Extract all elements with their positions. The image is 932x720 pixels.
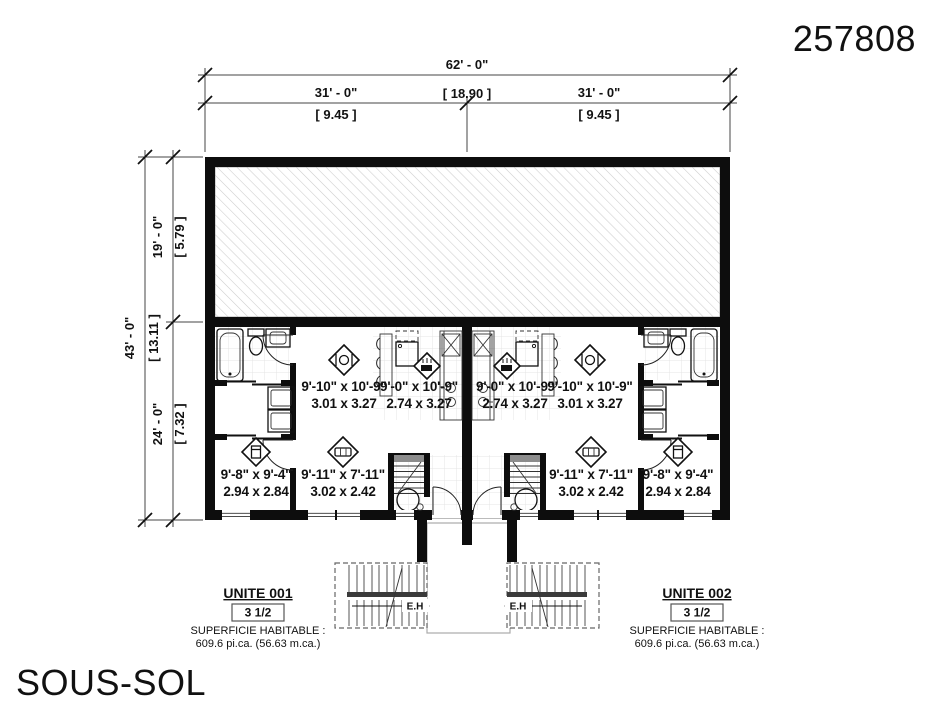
exterior-stair	[335, 563, 430, 628]
dim-right-width-m: [ 9.45 ]	[578, 107, 619, 122]
bedroom-dims-left: 9'-8" x 9'-4"	[221, 467, 292, 482]
living-dims-right: 9'-11" x 7'-11"	[549, 467, 633, 482]
unit-002-area-value: 609.6 pi.ca. (56.63 m.ca.)	[635, 638, 760, 650]
unexcavated-area	[215, 167, 720, 317]
dining-dims-m-left: 3.01 x 3.27	[311, 396, 376, 411]
dim-overall-width-m: [ 18.90 ]	[443, 86, 491, 101]
bedroom-dims-m-right: 2.94 x 2.84	[645, 484, 711, 499]
floor-plan-sheet: 62' - 0" [ 18.90 ] 31' - 0" [ 9.45 ] 31'…	[0, 0, 932, 720]
svg-text:E.H: E.H	[407, 602, 424, 613]
dim-right-width-ft: 31' - 0"	[578, 85, 621, 100]
dim-left-width-m: [ 9.45 ]	[315, 107, 356, 122]
drawing-number: 257808	[793, 18, 916, 59]
unit-002-name: UNITE 002	[662, 585, 731, 601]
svg-text:E.H: E.H	[510, 602, 527, 613]
dining-dims-right: 9'-10" x 10'-9"	[547, 379, 632, 394]
dim-top-depth-ft: 19' - 0"	[150, 216, 165, 259]
unit-002-type: 3 1/2	[684, 606, 711, 620]
kitchen-dims-left: 9'-0" x 10'-9"	[380, 379, 458, 394]
dining-dims-left: 9'-10" x 10'-9"	[301, 379, 386, 394]
unit-001-area-value: 609.6 pi.ca. (56.63 m.ca.)	[196, 638, 321, 650]
stair-label-right: E.H	[505, 599, 532, 613]
dining-icon-left	[329, 345, 359, 375]
party-wall	[462, 317, 472, 520]
dim-overall-depth-m: [ 13.11 ]	[146, 314, 161, 362]
bedroom-dims-m-left: 2.94 x 2.84	[223, 484, 289, 499]
stair-label-left: E.H	[402, 599, 429, 613]
floor-title: SOUS-SOL	[16, 662, 206, 703]
dim-overall-depth-ft: 43' - 0"	[122, 317, 137, 360]
unit-001-area-title: SUPERFICIE HABITABLE :	[191, 625, 326, 637]
dim-bottom-depth-m: [ 7.32 ]	[172, 403, 187, 444]
dim-overall-width-ft: 62' - 0"	[446, 57, 489, 72]
kitchen-dims-m-right: 2.74 x 3.27	[482, 396, 547, 411]
kitchen-dims-right: 9'-0" x 10'-9"	[476, 379, 554, 394]
living-dims-left: 9'-11" x 7'-11"	[301, 467, 385, 482]
dim-top-depth-m: [ 5.79 ]	[172, 216, 187, 257]
unit-002-block: UNITE 002 3 1/2 SUPERFICIE HABITABLE : 6…	[630, 585, 765, 650]
unit-001-type: 3 1/2	[245, 606, 272, 620]
unit-001-name: UNITE 001	[223, 585, 292, 601]
unit-001-block: UNITE 001 3 1/2 SUPERFICIE HABITABLE : 6…	[191, 585, 326, 650]
dim-left-width-ft: 31' - 0"	[315, 85, 358, 100]
dining-dims-m-right: 3.01 x 3.27	[557, 396, 622, 411]
sofa-icon-left	[328, 437, 358, 467]
kitchen-dims-m-left: 2.74 x 3.27	[386, 396, 451, 411]
bed-icon-right	[664, 438, 692, 466]
dining-icon-right	[575, 345, 605, 375]
dim-bottom-depth-ft: 24' - 0"	[150, 403, 165, 446]
bed-icon-left	[242, 438, 270, 466]
living-dims-m-right: 3.02 x 2.42	[558, 484, 623, 499]
living-dims-m-left: 3.02 x 2.42	[310, 484, 375, 499]
unit-002-area-title: SUPERFICIE HABITABLE :	[630, 625, 765, 637]
bedroom-dims-right: 9'-8" x 9'-4"	[643, 467, 714, 482]
floor-plan-drawing: 62' - 0" [ 18.90 ] 31' - 0" [ 9.45 ] 31'…	[0, 0, 932, 720]
sofa-icon-right	[576, 437, 606, 467]
